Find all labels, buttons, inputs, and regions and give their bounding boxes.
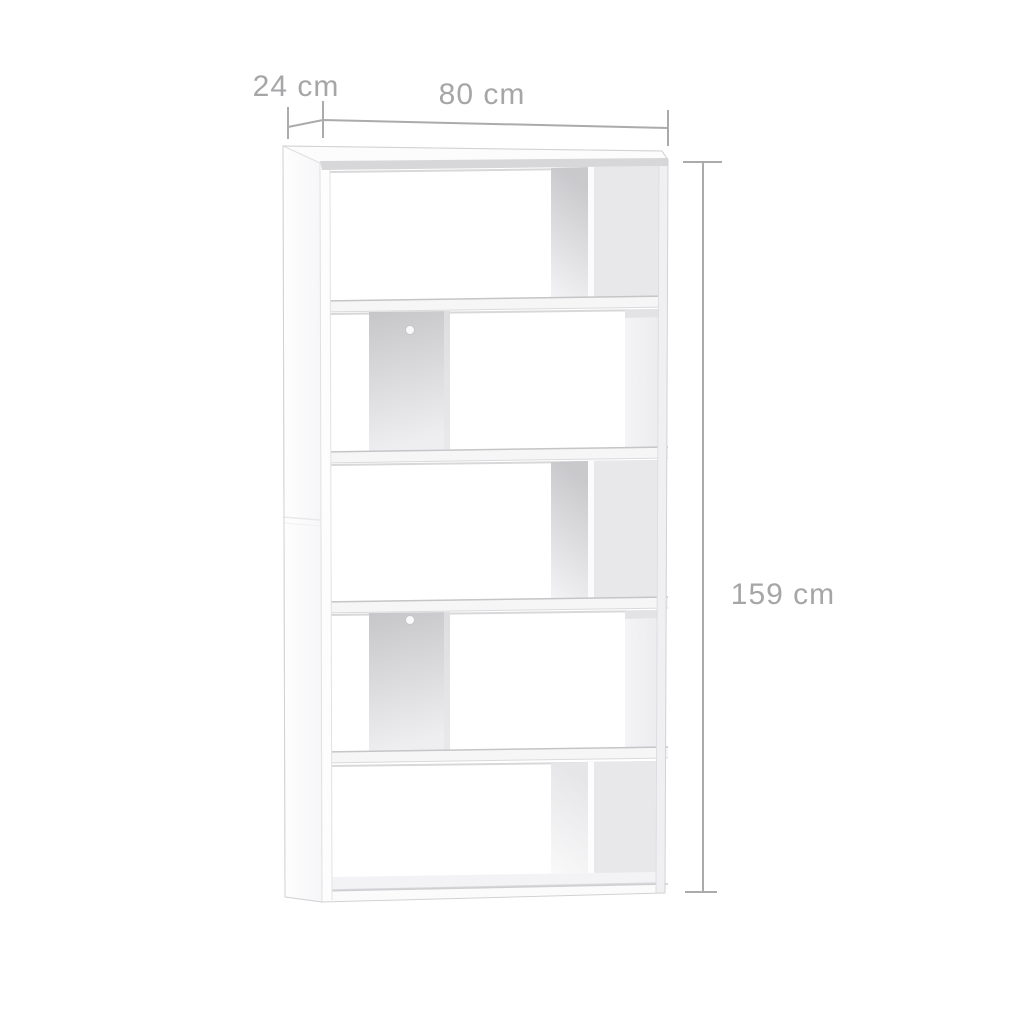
divider-front-edge	[588, 762, 594, 882]
side-panel-edge	[444, 612, 450, 750]
back-panel	[594, 460, 662, 599]
width-label: 80 cm	[439, 78, 526, 111]
divider-front-edge	[588, 461, 594, 599]
right-wall-top-sliver	[625, 610, 659, 619]
depth-width-dimension-line	[288, 120, 668, 128]
right-wall-inner-face	[625, 610, 659, 750]
back-panel	[594, 761, 662, 882]
height-dimension: 159 cm	[683, 162, 835, 892]
bookcase	[283, 146, 668, 902]
back-panel	[594, 166, 662, 297]
divider-face	[551, 167, 588, 300]
product-dimension-diagram: 24 cm 80 cm 159 cm	[0, 0, 1024, 1024]
height-label: 159 cm	[731, 578, 835, 611]
right-wall-top-sliver	[625, 309, 659, 318]
depth-label: 24 cm	[253, 70, 340, 103]
side-panel	[369, 612, 450, 752]
screw-hole	[406, 616, 415, 625]
right-wall-inner-face	[625, 309, 659, 450]
width-depth-dimension: 24 cm 80 cm	[253, 70, 668, 146]
screw-hole	[406, 326, 415, 335]
left-side-panel	[283, 146, 322, 902]
side-panel-edge	[444, 311, 450, 449]
divider-face	[551, 762, 588, 885]
product-image-canvas: 24 cm 80 cm 159 cm	[0, 0, 1024, 1024]
divider-front-edge	[588, 167, 594, 297]
divider-face	[551, 461, 588, 602]
